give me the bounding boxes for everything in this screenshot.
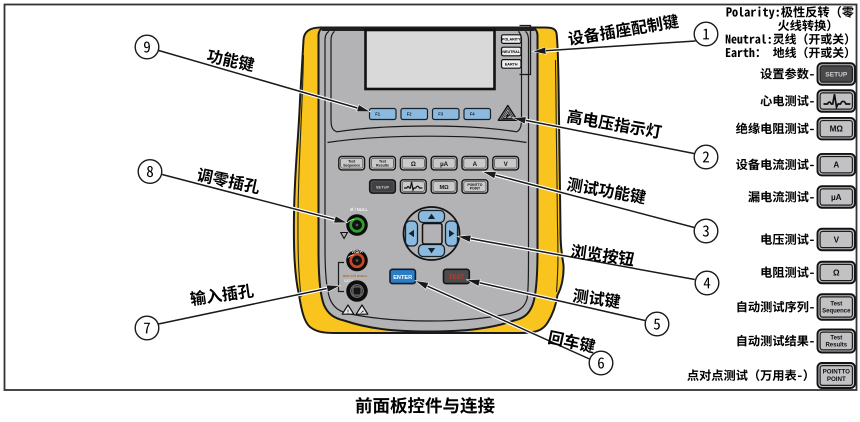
svg-text:Ω: Ω [833,268,840,277]
svg-text:Sequence: Sequence [343,164,360,168]
svg-text:POINT: POINT [827,376,846,383]
svg-text:Ø / NULL: Ø / NULL [350,207,368,212]
svg-text:µA: µA [831,193,842,202]
svg-text:Results: Results [825,343,847,349]
svg-text:Test: Test [830,302,842,308]
svg-text:EARTH: EARTH [505,63,518,67]
svg-text:ENTER: ENTER [393,275,412,281]
svg-text:F1: F1 [375,112,381,117]
svg-text:MΩ: MΩ [830,125,844,134]
svg-text:µA: µA [440,161,449,168]
svg-text:Sequence: Sequence [822,309,851,315]
svg-text:POINT: POINT [470,187,481,191]
svg-text:F4: F4 [470,112,476,117]
svg-text:SETUP: SETUP [825,71,848,78]
svg-text:POINTTO: POINTTO [823,369,851,376]
svg-text:Test: Test [830,336,842,342]
svg-text:MΩ: MΩ [440,185,450,191]
svg-text:Ω: Ω [411,161,416,168]
svg-text:F2: F2 [407,112,413,117]
svg-text:A: A [473,161,478,168]
svg-text:Results: Results [376,164,389,168]
svg-text:POLARITY: POLARITY [502,38,521,42]
svg-text:500V CAT II/10mA: 500V CAT II/10mA [343,274,368,278]
svg-text:TEST: TEST [449,275,465,281]
svg-text:NEUTRAL: NEUTRAL [502,50,520,54]
svg-text:!: ! [347,309,349,315]
svg-text:A: A [833,161,839,170]
svg-text:V/Ω/A: V/Ω/A [351,249,363,254]
svg-text:SETUP: SETUP [376,184,390,189]
svg-text:V: V [834,235,840,244]
svg-text:F3: F3 [438,112,444,117]
